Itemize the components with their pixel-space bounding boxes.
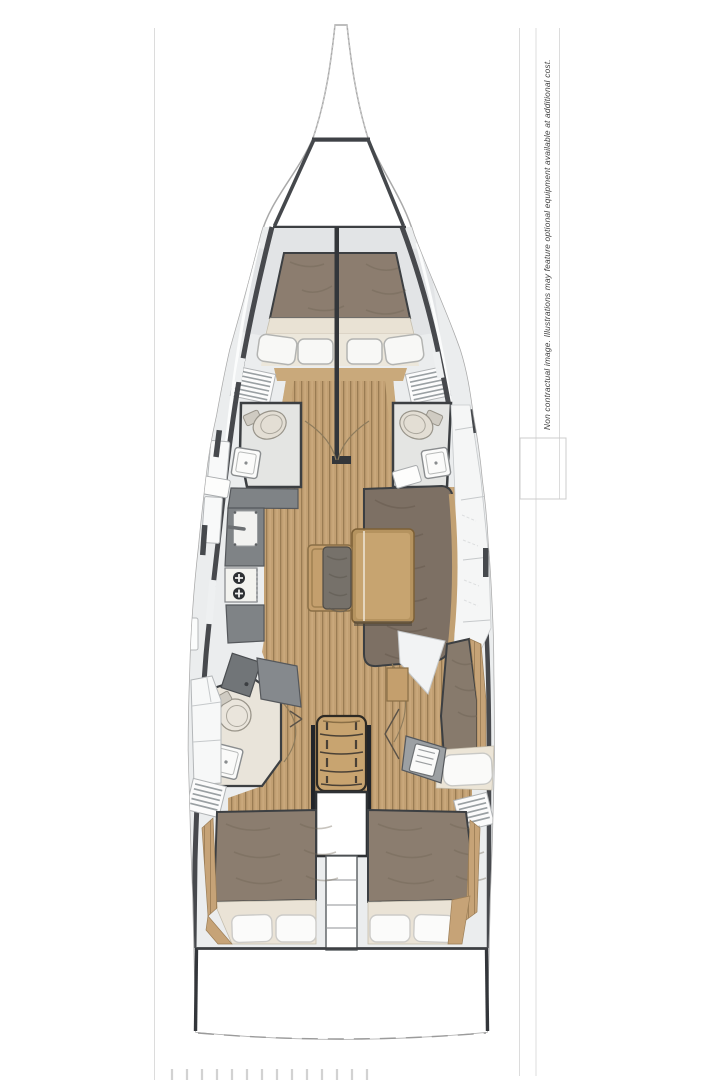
svg-text:Non contractual image. Illustr: Non contractual image. Illustrations may… xyxy=(542,59,552,430)
